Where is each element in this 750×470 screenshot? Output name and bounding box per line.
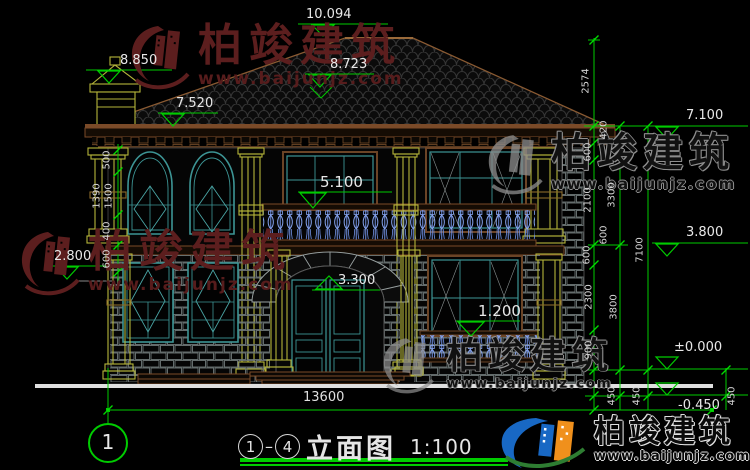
elevation-label-right-eave: 7.100	[686, 108, 723, 123]
arched-window-left-1	[128, 152, 172, 234]
balcony-balustrade	[262, 204, 536, 246]
elevation-label-window-sill: 1.200	[478, 302, 521, 320]
title-scale: 1:100	[410, 435, 473, 459]
elevation-label-balcony: 5.100	[320, 173, 363, 191]
axis-circle-to: 4	[275, 434, 300, 459]
dim-label: 2100	[583, 187, 594, 212]
dim-label: 3300	[607, 182, 618, 207]
dim-label: 600	[582, 245, 593, 264]
dim-label: 500	[102, 150, 113, 169]
elevation-label-chimney: 8.850	[120, 53, 157, 68]
elevation-label-eave: 7.520	[176, 96, 213, 111]
dim-label: 400	[102, 221, 113, 240]
dim-label: 600	[583, 142, 594, 161]
cad-elevation-canvas: 柏竣建筑 www.baijunjz.com 柏竣建筑 www.baijunjz.…	[0, 0, 750, 470]
axis-bubble-label: 1	[99, 430, 117, 454]
arched-window-left-2	[190, 152, 234, 234]
dim-label: 1500	[104, 183, 115, 208]
elevation-label-roof-right: 8.723	[330, 57, 367, 72]
terrace-railing	[420, 331, 538, 362]
elevation-label-ridge: 10.094	[306, 7, 352, 22]
elevation-label-right-floor2: 3.800	[686, 225, 723, 240]
elevation-label-grade: -0.450	[678, 398, 720, 413]
drawing-title: 1 – 4 立面图 1:100	[238, 427, 473, 466]
dim-label: 420	[599, 120, 610, 139]
dim-label: 900	[584, 340, 595, 359]
window-1f-right	[428, 256, 522, 336]
dim-total-width: 13600	[303, 390, 344, 405]
dim-label: 1390	[92, 183, 103, 208]
dim-label: 600	[599, 225, 610, 244]
dim-label: 3800	[609, 294, 620, 319]
elevation-label-ground: ±0.000	[674, 340, 722, 355]
entrance-steps	[138, 372, 410, 384]
elevation-label-arch: 3.300	[338, 273, 375, 288]
window-1f-left-2	[188, 263, 238, 342]
title-name: 立面图	[306, 427, 396, 466]
elevation-label-left-mid: 2.800	[54, 249, 91, 264]
dim-label: 450	[727, 386, 738, 405]
dim-label: 2300	[584, 284, 595, 309]
dim-label: 450	[607, 386, 618, 405]
dim-label: 7100	[635, 237, 646, 262]
dim-label: 2574	[581, 68, 592, 93]
axis-circle-from: 1	[238, 434, 263, 459]
dim-label: 450	[632, 386, 643, 405]
eave-cornice	[85, 124, 615, 148]
dim-label: 600	[102, 249, 113, 268]
title-dash: –	[265, 437, 273, 456]
